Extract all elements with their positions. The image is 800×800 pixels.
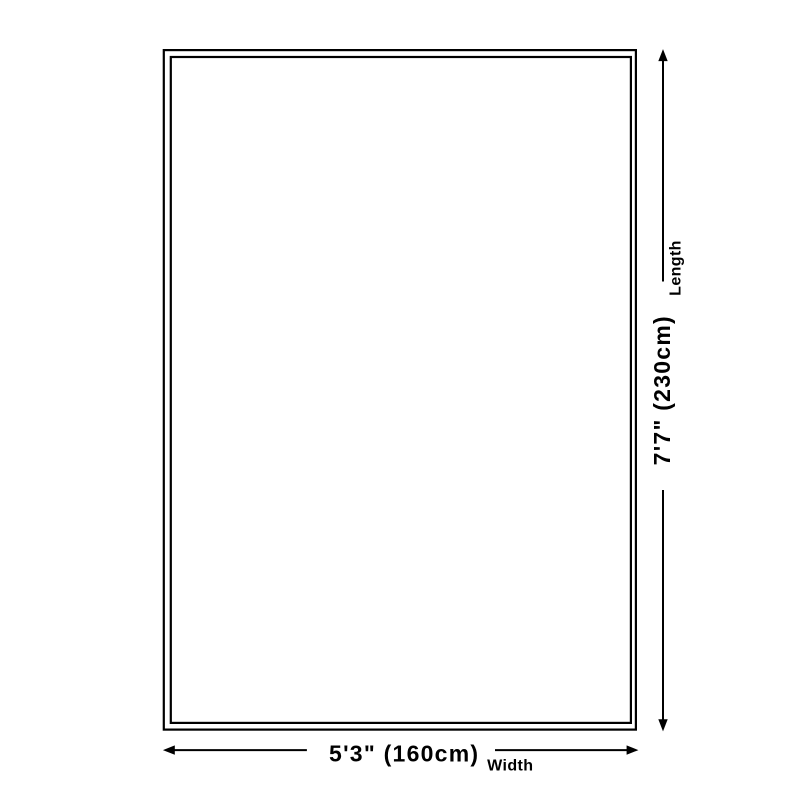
svg-text:7'7" (230cm): 7'7" (230cm) [649,315,675,465]
svg-text:Length: Length [668,240,685,296]
svg-text:Width: Width [487,757,533,774]
svg-text:5'3" (160cm): 5'3" (160cm) [329,740,479,766]
